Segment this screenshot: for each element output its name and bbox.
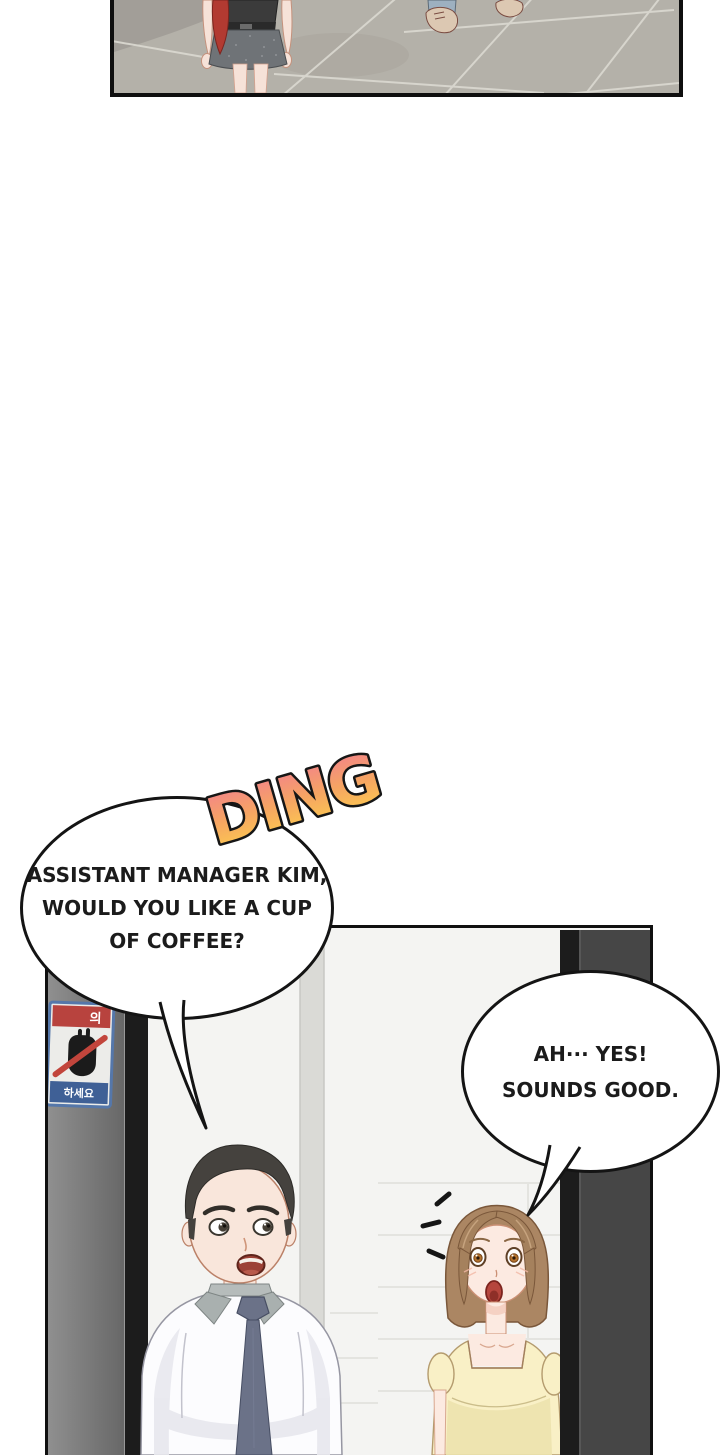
man-open-smile xyxy=(238,1255,265,1275)
ding-text: DING xyxy=(199,741,388,860)
woman-right-leg xyxy=(254,64,268,93)
woman-chest xyxy=(468,1334,526,1366)
bubble1-line2: WOULD YOU LIKE A CUP xyxy=(42,892,312,925)
sign-red-band xyxy=(52,1005,111,1028)
belt-buckle xyxy=(240,24,252,29)
ding-sfx: DING xyxy=(185,728,425,878)
woman-surprised-mouth xyxy=(486,1281,502,1303)
bubble2-tail xyxy=(520,1135,600,1225)
bubble1-tail-shape xyxy=(160,1000,206,1128)
bubble2-line2: SOUNDS GOOD. xyxy=(502,1072,679,1108)
elevator-warning-sign: 의 하세요 xyxy=(48,1002,114,1107)
panel-top-hallway xyxy=(110,0,683,97)
comic-page: 의 하세요 xyxy=(0,0,720,1455)
woman-nose xyxy=(496,1270,497,1277)
sign-bottom-korean-text: 하세요 xyxy=(63,1086,94,1101)
collar-stand xyxy=(207,1284,273,1296)
left-puff-sleeve xyxy=(428,1353,454,1395)
bubble1-line3: OF COFFEE? xyxy=(109,925,245,958)
sign-top-korean-text: 의 xyxy=(89,1010,102,1026)
bubble2-tail-shape xyxy=(528,1145,580,1215)
bubble2-line1: AH··· YES! xyxy=(534,1036,648,1072)
woman-left-arm xyxy=(434,1390,446,1455)
hallway-scene xyxy=(114,0,679,93)
bubble1-tail xyxy=(140,990,230,1140)
woman-left-leg xyxy=(233,64,247,93)
